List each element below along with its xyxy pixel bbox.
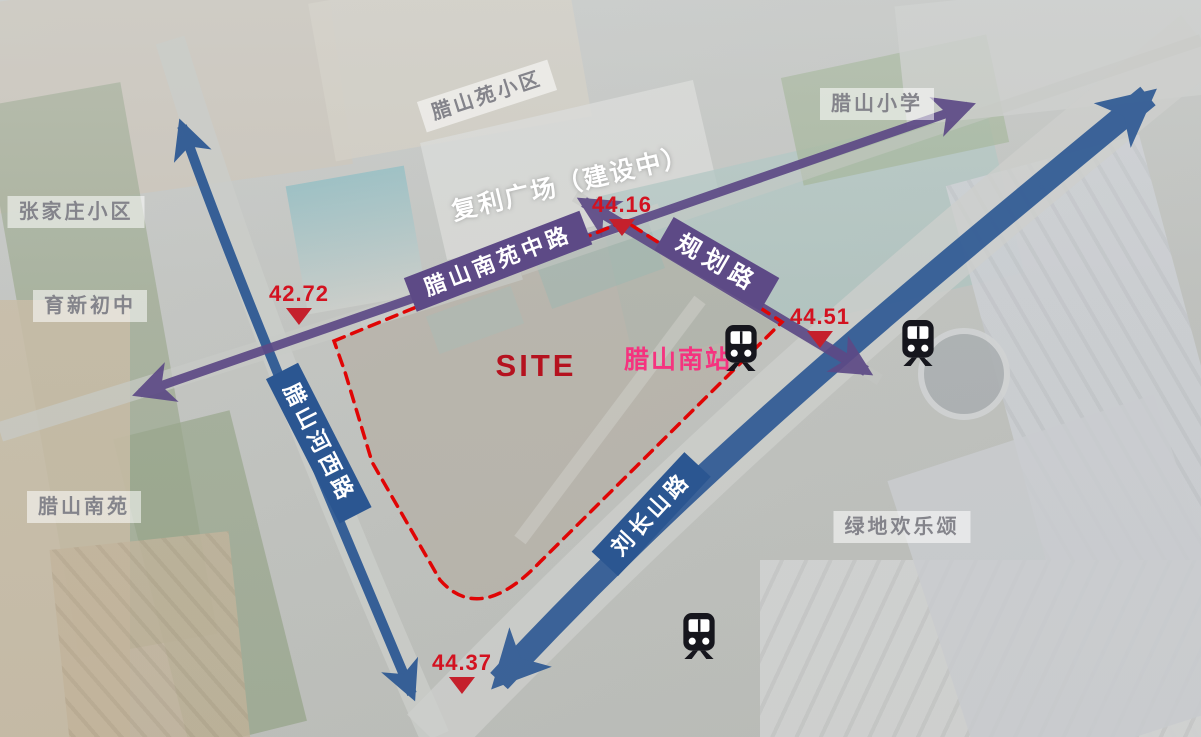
annotation-overlay	[0, 0, 1201, 737]
badge-zhangjiazhuang-community: 张家庄小区	[8, 196, 145, 228]
metro-station-icon	[722, 324, 760, 372]
badge-greenland-huanlesong: 绿地欢乐颂	[834, 511, 971, 543]
metro-station-icon	[899, 319, 937, 367]
red-triangle-down-icon	[807, 331, 833, 348]
elevation-value: 44.51	[790, 306, 850, 328]
badge-lashan-nanyuan: 腊山南苑	[27, 491, 141, 523]
elevation-value: 44.37	[432, 652, 492, 674]
red-triangle-down-icon	[286, 308, 312, 325]
elevation-marker-4416: 44.16	[592, 194, 652, 236]
badge-lashan-primary-school: 腊山小学	[820, 88, 934, 120]
elevation-marker-4437: 44.37	[432, 652, 492, 694]
red-triangle-down-icon	[449, 677, 475, 694]
elevation-marker-4451: 44.51	[790, 306, 850, 348]
metro-station-icon	[680, 612, 718, 660]
red-triangle-down-icon	[609, 219, 635, 236]
aerial-site-analysis-map: 腊山南苑中路 规划路 腊山河西路 刘长山路 腊山苑小区 腊山小学 张家庄小区 育…	[0, 0, 1201, 737]
elevation-marker-4272: 42.72	[269, 283, 329, 325]
badge-yuxin-middle-school: 育新初中	[33, 290, 147, 322]
elevation-value: 42.72	[269, 283, 329, 305]
elevation-value: 44.16	[592, 194, 652, 216]
site-label: SITE	[496, 348, 577, 384]
metro-station-name-label: 腊山南站	[624, 340, 732, 376]
